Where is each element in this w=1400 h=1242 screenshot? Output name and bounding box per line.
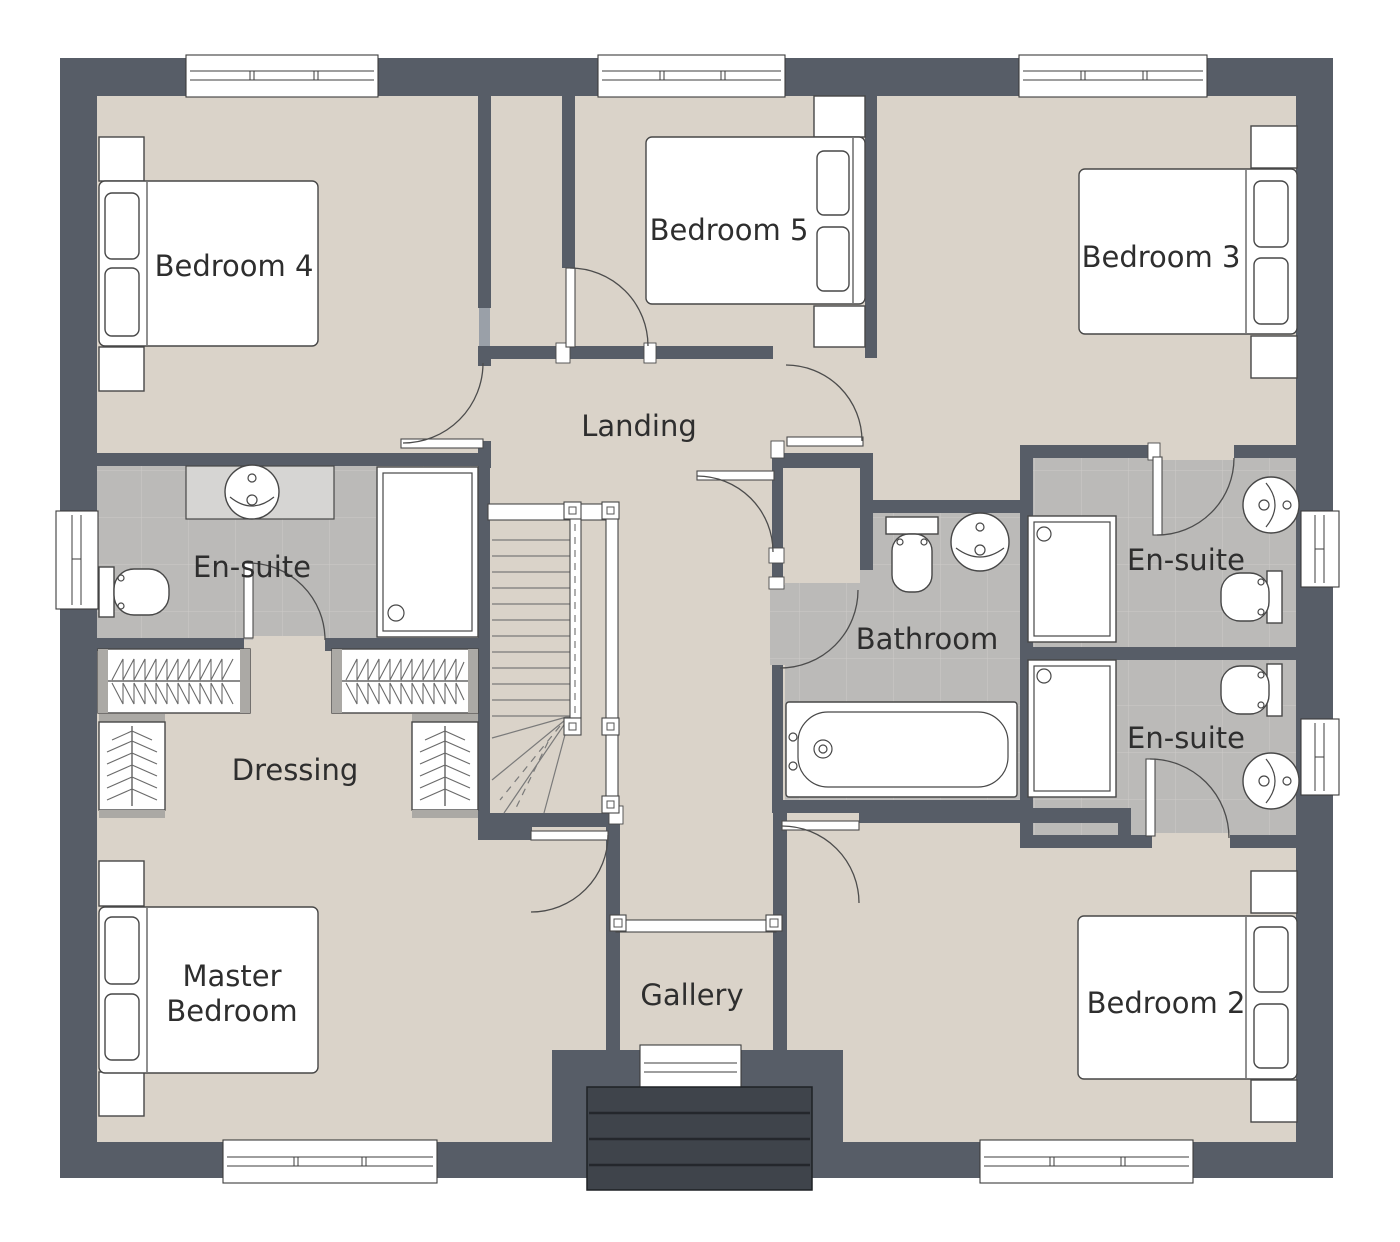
- toilet-icon: [886, 517, 938, 592]
- pillow-icon: [1254, 927, 1288, 992]
- wall-ensuite1-north-b: [1234, 445, 1297, 458]
- pillow-icon: [1254, 181, 1288, 247]
- sink-icon: [1243, 477, 1299, 533]
- doorway-ensuite2: [1152, 833, 1230, 850]
- wall-bathroom-west-b: [772, 563, 783, 577]
- pillow-icon: [1254, 1004, 1288, 1068]
- shower-icon: [1028, 516, 1116, 642]
- room-label-master-line2: Bedroom: [166, 994, 297, 1028]
- pillow-icon: [1254, 258, 1288, 324]
- stair-side-balustrade: [606, 518, 618, 800]
- room-label-bedroom2: Bedroom 2: [1087, 986, 1246, 1020]
- shelf-unit-icon: [99, 714, 165, 818]
- window-ensuite2: [1301, 719, 1339, 795]
- railing-bar: [616, 920, 776, 932]
- room-label-bedroom3: Bedroom 3: [1082, 240, 1241, 274]
- wall-bedroom2-north: [859, 808, 1130, 823]
- bathtub-icon: [786, 702, 1017, 797]
- wall-stairs-south: [483, 813, 620, 827]
- room-label-bedroom5: Bedroom 5: [650, 213, 809, 247]
- wall-bedroom4-east-upper: [478, 96, 491, 308]
- nightstand-icon: [99, 861, 144, 906]
- nightstand-icon: [814, 96, 865, 137]
- wall-ensuite1-north-a: [1022, 445, 1158, 458]
- floor-plan-page: Bedroom 4 Bedroom 5 Bedroom 3 Landing En…: [0, 0, 1400, 1242]
- wall-ensuite-divider: [1022, 647, 1297, 660]
- sink-icon: [1243, 753, 1299, 809]
- wall-ensuite2-south-a: [1022, 835, 1152, 848]
- sink-icon: [225, 465, 279, 519]
- nightstand-icon: [99, 347, 144, 391]
- jamb: [644, 343, 656, 363]
- wall-exterior-left: [60, 58, 97, 1178]
- window-bedroom5: [598, 55, 785, 97]
- nightstand-icon: [1251, 1080, 1297, 1122]
- pillow-icon: [105, 193, 139, 259]
- room-label-master-line1: Master: [182, 959, 281, 993]
- nightstand-icon: [99, 137, 144, 181]
- wall-ensuite2-south-b: [1230, 835, 1297, 848]
- room-label-landing: Landing: [581, 409, 697, 443]
- shelf-unit-icon: [412, 714, 478, 818]
- jamb: [771, 441, 784, 458]
- window-ensuite-left: [56, 511, 98, 609]
- doorway-bathroom: [770, 585, 785, 665]
- shower-icon: [377, 467, 478, 637]
- room-label-ensuite-bottom-right: En-suite: [1127, 721, 1245, 755]
- toilet-icon: [1221, 571, 1282, 623]
- doorway-ensuite1: [1158, 443, 1234, 460]
- pillow-icon: [105, 994, 139, 1060]
- room-label-bedroom4: Bedroom 4: [155, 249, 314, 283]
- wall-bedroom2-north-joint: [1118, 808, 1131, 848]
- room-label-ensuite-left: En-suite: [193, 550, 311, 584]
- room-label-gallery: Gallery: [640, 978, 743, 1012]
- window-bedroom2: [980, 1140, 1193, 1183]
- room-label-ensuite-top-right: En-suite: [1127, 543, 1245, 577]
- sink-icon: [951, 513, 1009, 571]
- window-ensuite1: [1301, 511, 1339, 587]
- floor-bathroom-recess: [783, 468, 860, 583]
- pillow-icon: [105, 917, 139, 984]
- wall-recess-north: [777, 453, 873, 468]
- jamb: [769, 577, 784, 589]
- wall-ensuite-left-north: [97, 453, 490, 466]
- wall-bathroom-west-c: [772, 665, 783, 813]
- nightstand-icon: [1251, 871, 1297, 913]
- nightstand-icon: [1251, 126, 1297, 168]
- nightstand-icon: [814, 306, 865, 347]
- room-label-bathroom: Bathroom: [856, 622, 998, 656]
- jamb: [769, 548, 784, 563]
- toilet-icon: [1221, 664, 1282, 716]
- railing-post: [766, 915, 782, 931]
- porch-canopy: [587, 1087, 812, 1190]
- window-master-bedroom: [223, 1140, 437, 1183]
- window-bedroom4: [186, 55, 378, 97]
- wall-bedroom5-east: [865, 96, 877, 358]
- pillow-icon: [105, 268, 139, 336]
- wall-bedroom5-closet-east: [562, 96, 575, 268]
- wardrobe-rail-icon: [332, 649, 478, 713]
- wall-landing-north-band: [480, 346, 773, 359]
- pillow-icon: [817, 227, 849, 291]
- nightstand-icon: [99, 1072, 144, 1116]
- wardrobe-rail-icon: [98, 649, 250, 713]
- nightstand-icon: [1251, 336, 1297, 378]
- doorway-ensuite-left: [253, 636, 325, 653]
- doorway-bedroom4: [476, 366, 493, 441]
- pillow-icon: [817, 151, 849, 215]
- window-bedroom3: [1019, 55, 1207, 97]
- wall-bathroom-north: [860, 500, 1033, 513]
- stair-top-rail: [488, 504, 608, 520]
- wall-exterior-right: [1296, 58, 1333, 1178]
- shower-icon: [1028, 660, 1116, 797]
- room-label-dressing: Dressing: [232, 753, 359, 787]
- wall-master-door-west: [478, 827, 532, 840]
- wall-bedroom4-east-lowstrip: [479, 308, 490, 346]
- floor-plan-canvas: Bedroom 4 Bedroom 5 Bedroom 3 Landing En…: [0, 0, 1400, 1242]
- railing-post: [610, 915, 626, 931]
- toilet-icon: [99, 567, 169, 617]
